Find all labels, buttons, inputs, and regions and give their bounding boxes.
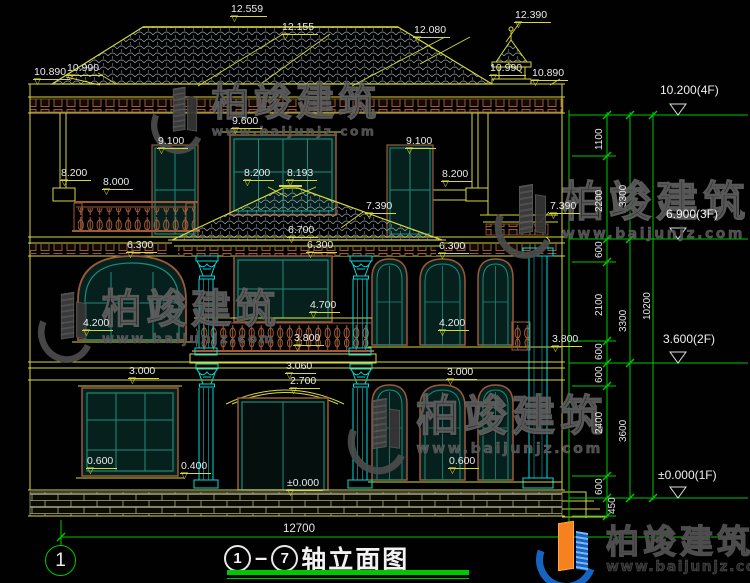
elevation-drawing: [0, 0, 750, 583]
floor-level-triangles: [670, 104, 686, 498]
title-axis-from: 1: [224, 545, 251, 572]
cad-elevation-canvas: 柏竣建筑 www.baijunjz.com 柏竣建筑 www.baijunjz.…: [0, 0, 750, 583]
floor-band-2f: [28, 362, 565, 380]
grid-bubble-1: 1: [45, 545, 76, 576]
title-axis-to: 7: [271, 545, 298, 572]
cupola: [492, 27, 531, 84]
title-underline: [227, 570, 469, 575]
title-underline-thin: [227, 578, 469, 579]
footer-brand-block: 柏竣建筑 www.baijunjz.com: [538, 520, 750, 580]
stone-base: [28, 490, 606, 518]
title-dash: –: [255, 545, 267, 571]
footer-brand: 柏竣建筑: [606, 525, 750, 560]
brand-logo-icon: [538, 520, 598, 580]
footer-url: www.baijunjz.com: [606, 559, 750, 575]
overall-width-dimension: 12700: [283, 524, 315, 536]
first-floor-windows: [76, 385, 562, 490]
eave-cornice: [28, 84, 565, 113]
